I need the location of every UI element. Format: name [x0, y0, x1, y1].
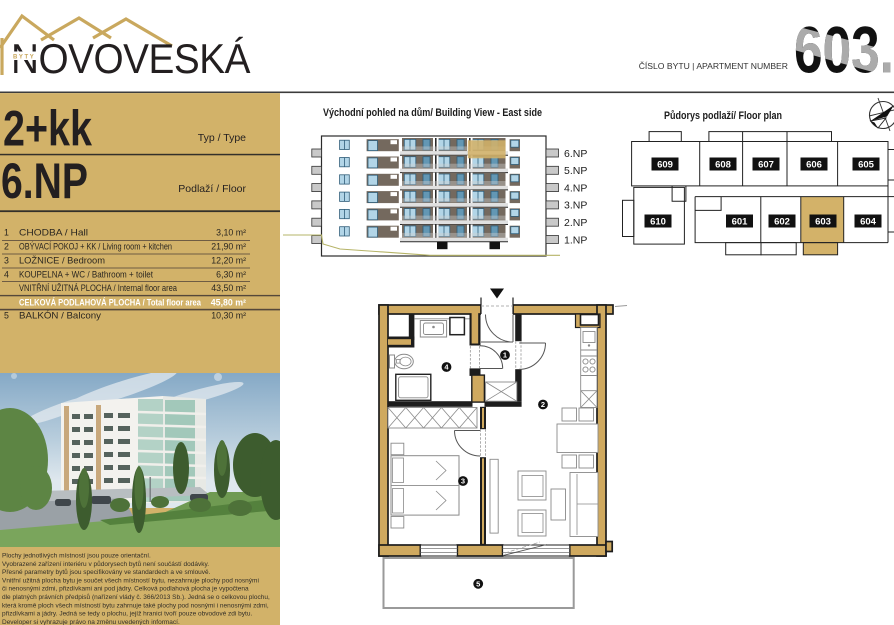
svg-text:5: 5: [476, 580, 480, 589]
svg-text:604: 604: [860, 217, 877, 228]
svg-text:VNITŘNÍ UŽITNÁ PLOCHA / Intern: VNITŘNÍ UŽITNÁ PLOCHA / Internal floor a…: [19, 283, 177, 293]
svg-text:Podlaží / Floor: Podlaží / Floor: [178, 183, 246, 195]
svg-text:605: 605: [858, 160, 875, 171]
svg-text:Plochy jednotlivých místností: Plochy jednotlivých místností jsou pouze…: [2, 553, 151, 560]
svg-text:LOŽNICE / Bedroom: LOŽNICE / Bedroom: [19, 255, 105, 265]
svg-text:CELKOVÁ PODLAHOVÁ PLOCHA / Tot: CELKOVÁ PODLAHOVÁ PLOCHA / Total floor a…: [19, 298, 201, 308]
svg-text:602: 602: [774, 217, 790, 228]
svg-text:2: 2: [541, 400, 545, 409]
svg-text:601: 601: [732, 217, 749, 228]
svg-text:Vyobrazené zařízení interiéru: Vyobrazené zařízení interiéru v půdoryse…: [2, 560, 209, 568]
svg-text:2+kk: 2+kk: [3, 101, 92, 157]
svg-text:609: 609: [657, 160, 673, 171]
svg-text:2.NP: 2.NP: [564, 217, 587, 229]
svg-text:Developer si vyhrazuje právo n: Developer si vyhrazuje právo na změnu uv…: [2, 619, 180, 625]
svg-text:610: 610: [650, 217, 666, 228]
svg-text:1: 1: [4, 228, 9, 238]
svg-text:5: 5: [4, 311, 9, 321]
svg-text:5.NP: 5.NP: [564, 165, 587, 177]
svg-text:Přesné parametry bytů jsou spe: Přesné parametry bytů jsou specifikovány…: [2, 568, 211, 576]
svg-text:CHODBA / Hall: CHODBA / Hall: [19, 228, 88, 238]
svg-text:606: 606: [806, 160, 822, 171]
svg-text:přizdívkami a jádry. Jedná se: přizdívkami a jádry. Jedná se tedy o plo…: [2, 611, 252, 618]
svg-text:4.NP: 4.NP: [564, 182, 587, 194]
svg-text:která kromě ploch všech místno: která kromě ploch všech místností bytu z…: [2, 602, 269, 609]
svg-text:Vnitřní užitná plocha bytu je: Vnitřní užitná plocha bytu je součet vše…: [2, 577, 259, 584]
svg-text:2: 2: [4, 241, 9, 251]
svg-text:Typ / Type: Typ / Type: [198, 132, 246, 144]
svg-text:1: 1: [503, 351, 507, 360]
svg-text:607: 607: [758, 160, 774, 171]
svg-text:3,10 m²: 3,10 m²: [216, 228, 246, 238]
svg-text:KOUPELNA + WC / Bathroom + toi: KOUPELNA + WC / Bathroom + toilet: [19, 269, 154, 279]
svg-text:3.NP: 3.NP: [564, 200, 587, 212]
svg-text:6.NP: 6.NP: [1, 153, 88, 209]
svg-text:BYTY: BYTY: [13, 55, 35, 61]
svg-text:Východní pohled na dům/ Buildi: Východní pohled na dům/ Building View - …: [323, 107, 542, 119]
svg-text:6.NP: 6.NP: [564, 148, 587, 160]
svg-text:6,30 m²: 6,30 m²: [216, 269, 246, 279]
svg-text:OBÝVACÍ POKOJ + KK / Living ro: OBÝVACÍ POKOJ + KK / Living room + kitch…: [19, 241, 172, 251]
svg-text:12,20 m²: 12,20 m²: [211, 255, 246, 265]
svg-text:ČÍSLO BYTU | APARTMENT NUMBER: ČÍSLO BYTU | APARTMENT NUMBER: [639, 61, 788, 71]
svg-text:3: 3: [4, 255, 9, 265]
svg-text:608: 608: [715, 160, 731, 171]
svg-text:45,80 m²: 45,80 m²: [211, 298, 246, 308]
svg-text:4: 4: [4, 269, 9, 279]
svg-text:či nenosnými zdmi, přizdívkami: či nenosnými zdmi, přizdívkami ani pod j…: [2, 586, 249, 593]
svg-text:BALKÓN / Balcony: BALKÓN / Balcony: [19, 311, 102, 321]
svg-text:NOVOVESKÁ: NOVOVESKÁ: [11, 35, 251, 82]
svg-text:21,90 m²: 21,90 m²: [211, 241, 246, 251]
svg-text:1.NP: 1.NP: [564, 234, 587, 246]
svg-text:603: 603: [815, 217, 831, 228]
svg-text:Půdorys podlaží/ Floor plan: Půdorys podlaží/ Floor plan: [664, 110, 782, 122]
svg-text:10,30 m²: 10,30 m²: [211, 311, 246, 321]
svg-text:3: 3: [461, 477, 465, 486]
svg-text:43,50 m²: 43,50 m²: [211, 283, 246, 293]
svg-text:dle platných právních předpisů: dle platných právních předpisů (nařízení…: [2, 593, 270, 601]
